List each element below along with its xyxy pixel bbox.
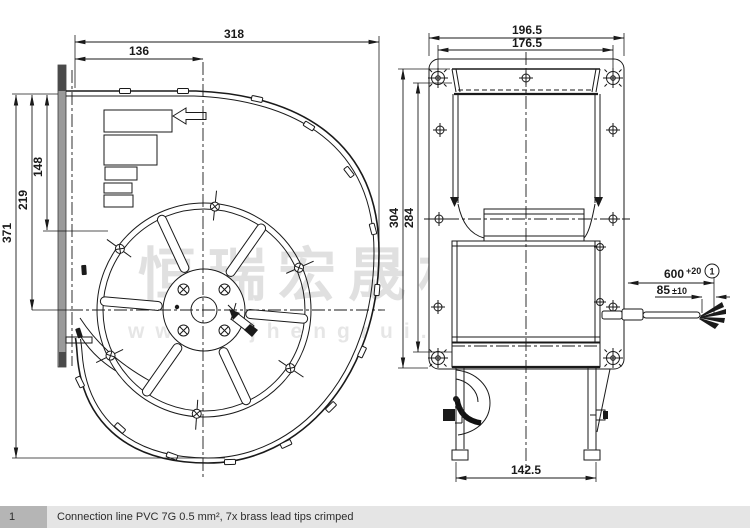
- note-text: Connection line PVC 7G 0.5 mm², 7x brass…: [57, 511, 354, 523]
- outlet-duct: [443, 367, 610, 460]
- dim-inner-height: 284: [402, 208, 416, 228]
- right-view-side: 196.5 176.5 304 284 142.5 600: [387, 23, 730, 482]
- dim-center-height: 219: [16, 190, 30, 210]
- dim-lead-length-tol: +20: [686, 266, 701, 276]
- dim-strip-length: 85: [657, 283, 671, 297]
- dim-overall-width: 318: [224, 27, 244, 41]
- dim-right-overall-height: 304: [387, 208, 401, 228]
- dim-outlet-width: 142.5: [511, 463, 541, 477]
- hub-pin: [175, 305, 179, 309]
- duct-bolt-right: [590, 410, 608, 420]
- note-index: 1: [9, 511, 15, 523]
- outlet-flange: [58, 65, 92, 367]
- housing-body: [452, 241, 606, 342]
- note-index-cell: 1: [0, 506, 47, 528]
- fan-drawing: 318 136 371 219 148: [0, 0, 750, 528]
- crimped-tips-icon: [699, 302, 726, 329]
- left-view-front: 318 136 371 219 148: [0, 27, 385, 477]
- dim-overall-height: 371: [0, 223, 14, 243]
- dim-flange-to-center: 136: [129, 44, 149, 58]
- support-strut: [597, 369, 610, 432]
- dim-lead-length: 600: [664, 267, 684, 281]
- dim-flange-width: 196.5: [512, 23, 542, 37]
- svg-text:1: 1: [709, 267, 714, 277]
- terminal-box: [104, 110, 172, 207]
- technical-drawing-page: 恒瑞宏晟机电 www.bjhengrui.cn: [0, 0, 750, 528]
- impeller-disc: [484, 209, 584, 241]
- notes-bar: 1 Connection line PVC 7G 0.5 mm², 7x bra…: [0, 506, 750, 528]
- dim-upper-height: 148: [31, 157, 45, 177]
- dim-hole-spacing: 176.5: [512, 36, 542, 50]
- rotation-arrow-icon: [173, 108, 206, 124]
- callout-1-icon: 1: [705, 264, 719, 278]
- dim-strip-tol: ±10: [672, 286, 687, 296]
